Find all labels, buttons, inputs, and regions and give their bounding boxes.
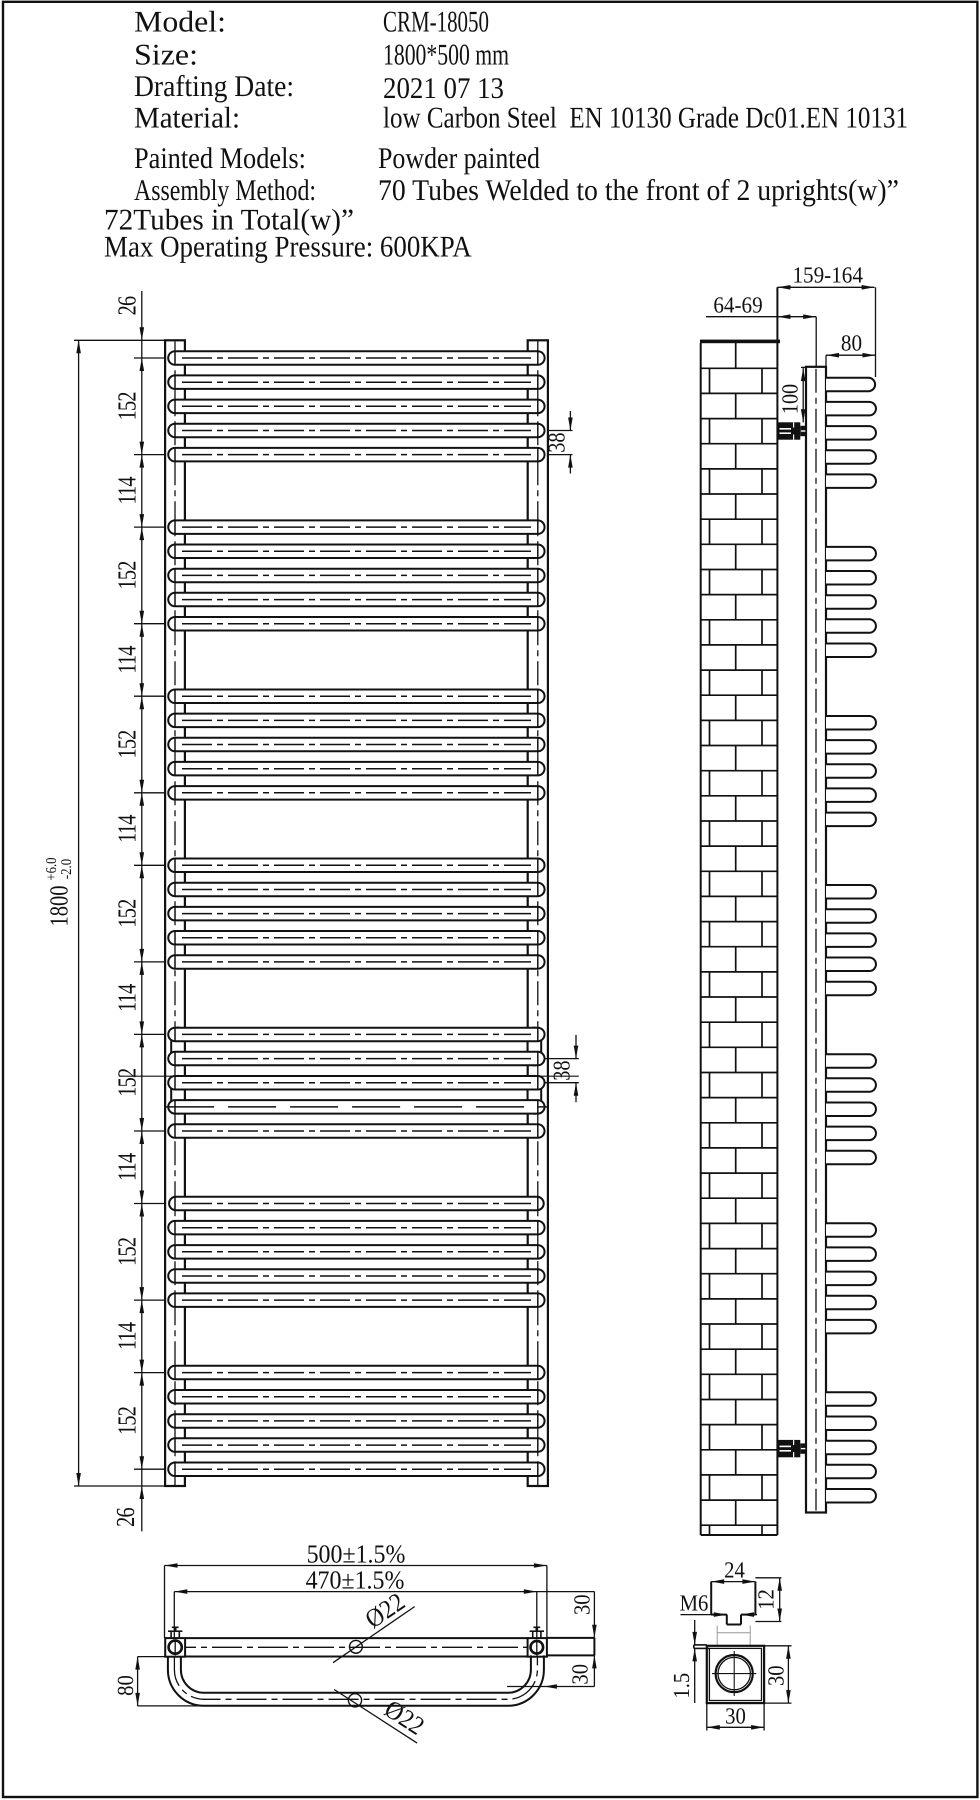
svg-text:152: 152 xyxy=(113,900,142,928)
svg-text:1.5: 1.5 xyxy=(669,1673,694,1699)
svg-text:38: 38 xyxy=(545,432,571,452)
svg-text:+6.0: +6.0 xyxy=(44,857,60,880)
svg-text:30: 30 xyxy=(725,1704,746,1729)
svg-text:26: 26 xyxy=(111,1507,140,1527)
svg-text:Model:: Model: xyxy=(134,6,226,39)
svg-text:low Carbon Steel EN 10130 Gra: low Carbon Steel EN 10130 Grade Dc01.EN … xyxy=(383,102,908,135)
svg-text:1800: 1800 xyxy=(45,885,74,926)
svg-text:152: 152 xyxy=(113,730,142,758)
svg-text:70 Tubes Welded to the front o: 70 Tubes Welded to the front of 2 uprigh… xyxy=(378,174,899,207)
svg-text:24: 24 xyxy=(724,1557,745,1582)
svg-text:Assembly Method:: Assembly Method: xyxy=(134,174,316,207)
svg-text:2021 07 13: 2021 07 13 xyxy=(383,72,504,105)
svg-text:152: 152 xyxy=(113,561,142,589)
svg-text:152: 152 xyxy=(113,1407,142,1435)
svg-text:114: 114 xyxy=(113,1322,142,1350)
svg-text:Ø22: Ø22 xyxy=(379,1694,429,1741)
svg-text:26: 26 xyxy=(113,296,142,316)
svg-text:80: 80 xyxy=(113,1675,138,1696)
svg-text:114: 114 xyxy=(113,646,142,674)
svg-text:Size:: Size: xyxy=(134,39,198,72)
svg-text:114: 114 xyxy=(113,815,142,843)
svg-text:100: 100 xyxy=(778,384,803,414)
svg-text:500±1.5%: 500±1.5% xyxy=(307,1540,406,1569)
svg-text:-2.0: -2.0 xyxy=(59,859,75,879)
svg-text:152: 152 xyxy=(113,1069,142,1097)
svg-text:Painted Models:: Painted Models: xyxy=(134,142,306,175)
svg-text:Max Operating Pressure: 600KPA: Max Operating Pressure: 600KPA xyxy=(104,231,472,264)
svg-text:30: 30 xyxy=(764,1665,789,1686)
svg-text:80: 80 xyxy=(841,331,862,356)
svg-text:64-69: 64-69 xyxy=(713,293,762,318)
svg-text:M6: M6 xyxy=(680,1591,709,1616)
svg-text:Powder painted: Powder painted xyxy=(378,142,540,175)
svg-text:30: 30 xyxy=(570,1594,595,1615)
svg-text:159-164: 159-164 xyxy=(792,263,863,288)
svg-text:Material:: Material: xyxy=(134,102,240,135)
svg-text:1800*500 mm: 1800*500 mm xyxy=(383,39,509,72)
svg-text:152: 152 xyxy=(113,1238,142,1266)
svg-text:Drafting Date:: Drafting Date: xyxy=(134,70,294,103)
svg-text:152: 152 xyxy=(113,392,142,420)
svg-text:12: 12 xyxy=(754,1589,779,1610)
svg-text:CRM-18050: CRM-18050 xyxy=(383,6,489,39)
svg-text:38: 38 xyxy=(550,1060,576,1080)
svg-text:114: 114 xyxy=(113,984,142,1012)
svg-text:114: 114 xyxy=(113,476,142,504)
svg-text:114: 114 xyxy=(113,1153,142,1181)
svg-text:30: 30 xyxy=(568,1664,593,1685)
